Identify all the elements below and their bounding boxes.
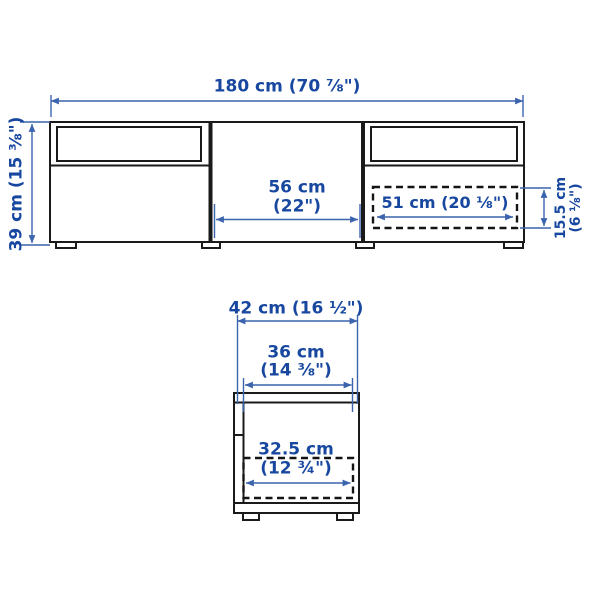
label-drawer-inner-depth-cm: 32.5 cm xyxy=(258,441,334,460)
label-overall-width: 180 cm (70 ⅞") xyxy=(214,78,361,97)
label-drawer-inner-height-cm: 15.5 cm xyxy=(554,177,569,239)
front-foot-3 xyxy=(356,242,374,248)
label-drawer-inner-height: 15.5 cm (6 ⅛") xyxy=(554,177,584,239)
label-drawer-inner-width: 51 cm (20 ⅛") xyxy=(382,194,509,212)
side-foot-2 xyxy=(337,513,353,520)
product-dimension-diagram: 180 cm (70 ⅞") 39 cm (15 ⅜") 56 cm (22")… xyxy=(0,0,600,600)
side-foot-1 xyxy=(243,513,259,520)
label-drawer-inner-depth-in: (12 ¾") xyxy=(260,460,332,479)
label-overall-height: 39 cm (15 ⅜") xyxy=(8,117,27,252)
label-drawer-inner-height-in: (6 ⅛") xyxy=(569,177,584,239)
label-overall-depth: 42 cm (16 ½") xyxy=(229,300,364,319)
front-foot-2 xyxy=(202,242,220,248)
label-inner-depth-in: (14 ⅜") xyxy=(260,362,332,381)
label-inner-depth-cm: 36 cm xyxy=(267,344,324,363)
front-foot-1 xyxy=(56,242,76,248)
front-foot-4 xyxy=(504,242,523,248)
label-door-width-in: (22") xyxy=(273,198,321,217)
front-view xyxy=(20,95,551,248)
label-door-width-cm: 56 cm xyxy=(268,179,325,198)
